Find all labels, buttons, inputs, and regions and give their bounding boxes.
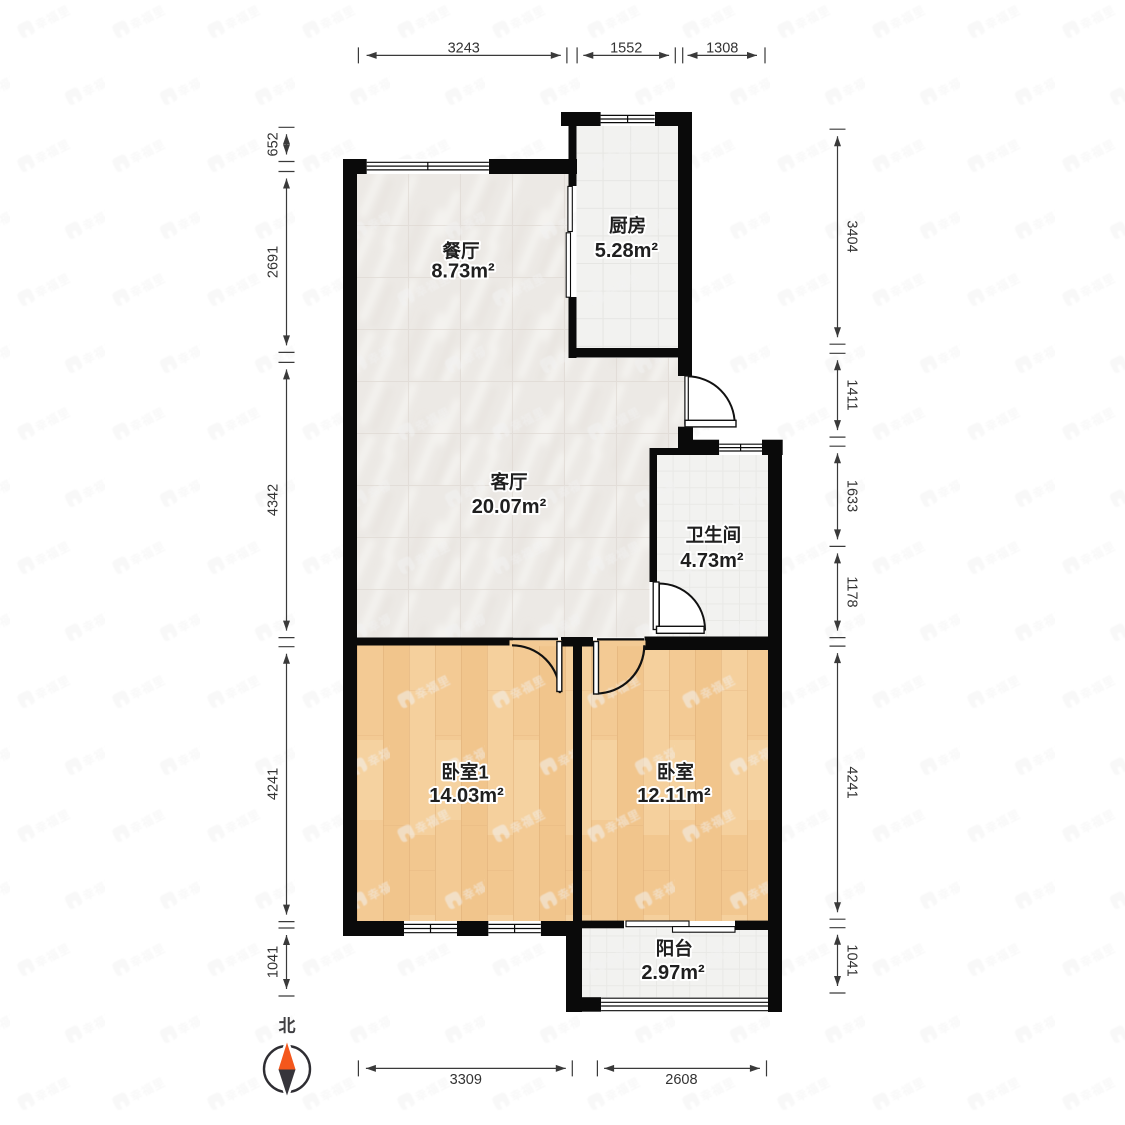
- svg-text:1552: 1552: [610, 40, 642, 56]
- svg-text:2691: 2691: [266, 246, 282, 278]
- svg-text:2.97m²: 2.97m²: [641, 962, 705, 984]
- svg-text:8.73m²: 8.73m²: [431, 261, 495, 283]
- svg-text:餐厅: 餐厅: [441, 241, 479, 262]
- svg-text:3404: 3404: [844, 220, 860, 252]
- svg-text:卧室: 卧室: [657, 762, 694, 783]
- svg-text:4241: 4241: [844, 766, 860, 798]
- svg-text:4.73m²: 4.73m²: [680, 550, 744, 572]
- svg-text:北: 北: [279, 1017, 296, 1036]
- svg-text:厨房: 厨房: [609, 215, 646, 236]
- svg-text:1178: 1178: [844, 576, 860, 607]
- svg-text:2608: 2608: [665, 1072, 697, 1088]
- svg-text:3243: 3243: [448, 40, 480, 56]
- svg-text:1411: 1411: [844, 379, 860, 410]
- svg-text:客厅: 客厅: [490, 472, 527, 493]
- svg-text:14.03m²: 14.03m²: [429, 785, 504, 807]
- svg-text:3309: 3309: [450, 1072, 482, 1088]
- svg-text:4342: 4342: [266, 484, 282, 516]
- svg-text:12.11m²: 12.11m²: [637, 785, 711, 807]
- svg-text:20.07m²: 20.07m²: [472, 496, 547, 518]
- svg-text:1041: 1041: [266, 946, 282, 978]
- svg-text:652: 652: [266, 132, 282, 156]
- svg-text:4241: 4241: [266, 768, 282, 800]
- svg-text:卧室1: 卧室1: [441, 762, 488, 783]
- svg-text:1041: 1041: [844, 944, 860, 976]
- svg-text:阳台: 阳台: [656, 938, 693, 959]
- svg-text:卫生间: 卫生间: [686, 524, 742, 545]
- svg-text:1633: 1633: [844, 480, 860, 512]
- svg-text:5.28m²: 5.28m²: [595, 240, 659, 262]
- svg-text:1308: 1308: [706, 40, 738, 56]
